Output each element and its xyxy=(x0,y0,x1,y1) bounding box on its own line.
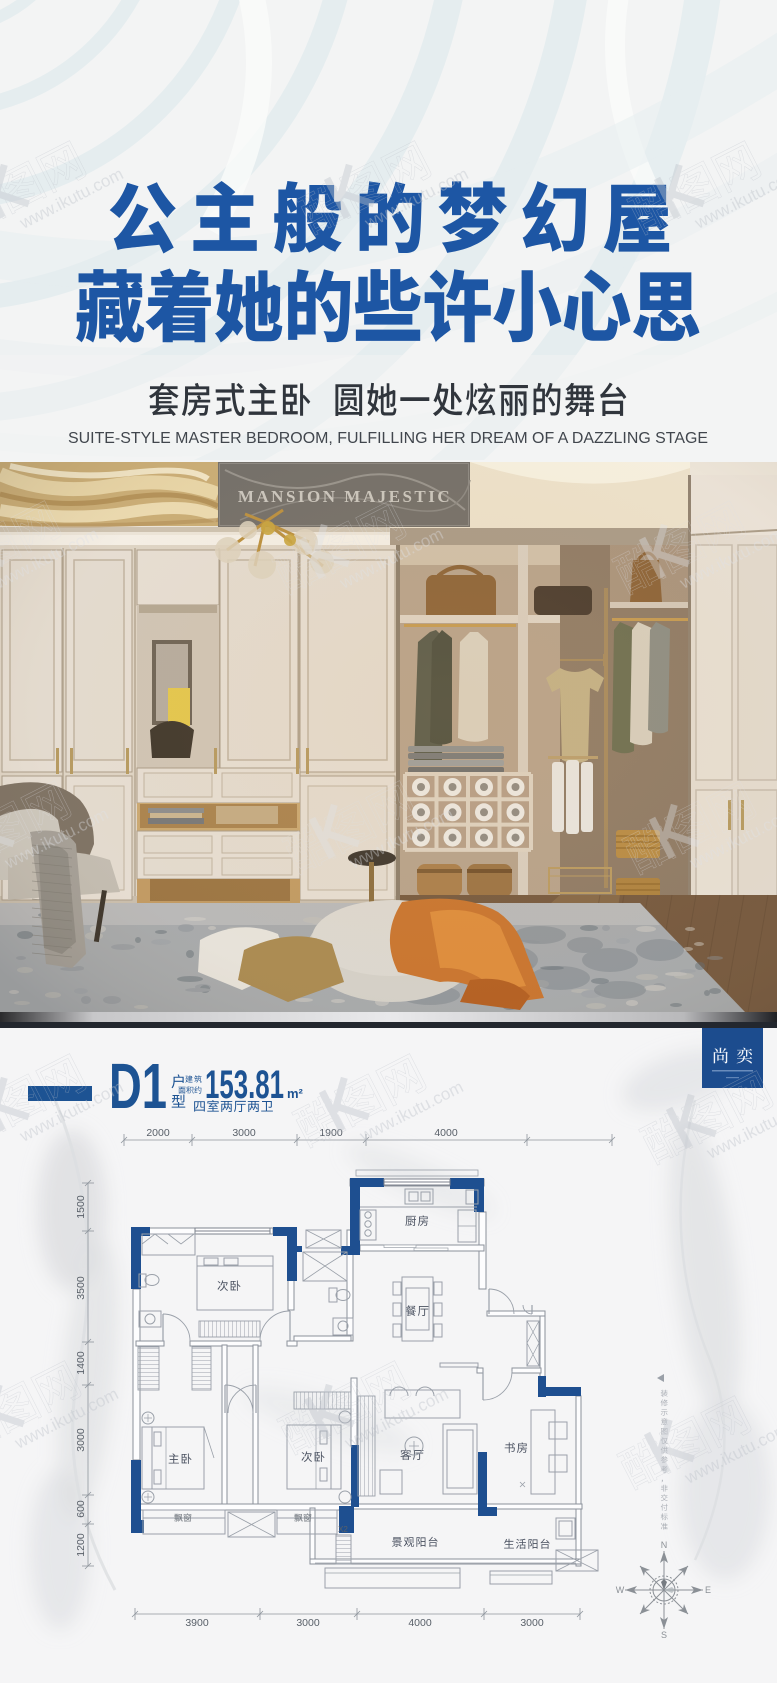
svg-text:E: E xyxy=(705,1585,711,1595)
svg-text:3900: 3900 xyxy=(185,1617,209,1629)
svg-text:600: 600 xyxy=(75,1500,87,1518)
svg-text:3000: 3000 xyxy=(75,1428,87,1452)
svg-text:153.81: 153.81 xyxy=(205,1063,284,1107)
svg-text:1200: 1200 xyxy=(75,1533,87,1557)
svg-text:3000: 3000 xyxy=(232,1127,256,1139)
svg-text:2000: 2000 xyxy=(146,1127,170,1139)
svg-text:N: N xyxy=(661,1540,668,1550)
svg-text:3000: 3000 xyxy=(296,1617,320,1629)
svg-text:4000: 4000 xyxy=(408,1617,432,1629)
svg-text:1400: 1400 xyxy=(75,1351,87,1375)
svg-text:4000: 4000 xyxy=(434,1127,458,1139)
svg-text:1500: 1500 xyxy=(75,1195,87,1219)
svg-text:W: W xyxy=(616,1585,625,1595)
svg-text:S: S xyxy=(661,1630,667,1640)
svg-text:SUITE-STYLE MASTER BEDROOM, FU: SUITE-STYLE MASTER BEDROOM, FULFILLING H… xyxy=(68,430,708,447)
svg-text:m²: m² xyxy=(287,1086,304,1101)
svg-text:X2: X2 xyxy=(338,1525,348,1534)
svg-text:3000: 3000 xyxy=(520,1617,544,1629)
svg-text:3500: 3500 xyxy=(75,1276,87,1300)
